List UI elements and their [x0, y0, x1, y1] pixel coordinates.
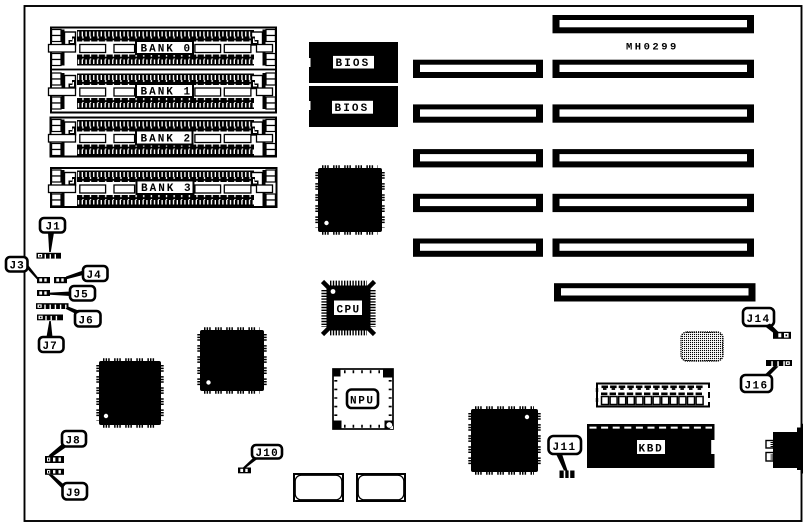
svg-text:BIOS: BIOS	[336, 58, 371, 70]
svg-text:BIOS: BIOS	[335, 103, 370, 115]
svg-text:J9: J9	[66, 488, 81, 500]
svg-text:KBD: KBD	[639, 444, 664, 456]
svg-text:J6: J6	[79, 316, 94, 328]
svg-text:J1: J1	[46, 222, 61, 234]
svg-text:J3: J3	[10, 261, 25, 273]
svg-text:J4: J4	[87, 270, 102, 282]
svg-text:MH0299: MH0299	[626, 42, 679, 54]
svg-text:BANK 0: BANK 0	[141, 43, 193, 55]
svg-text:J7: J7	[43, 341, 58, 353]
svg-text:CPU: CPU	[337, 304, 361, 316]
svg-text:J10: J10	[256, 448, 279, 460]
svg-text:J8: J8	[66, 436, 81, 448]
svg-text:J14: J14	[747, 314, 771, 326]
svg-text:BANK 2: BANK 2	[141, 133, 193, 145]
svg-text:J5: J5	[74, 290, 89, 302]
svg-text:NPU: NPU	[350, 396, 375, 408]
svg-text:J16: J16	[745, 381, 769, 393]
svg-text:BANK 3: BANK 3	[141, 183, 193, 195]
svg-text:J11: J11	[553, 442, 577, 454]
svg-text:BANK 1: BANK 1	[141, 86, 193, 98]
